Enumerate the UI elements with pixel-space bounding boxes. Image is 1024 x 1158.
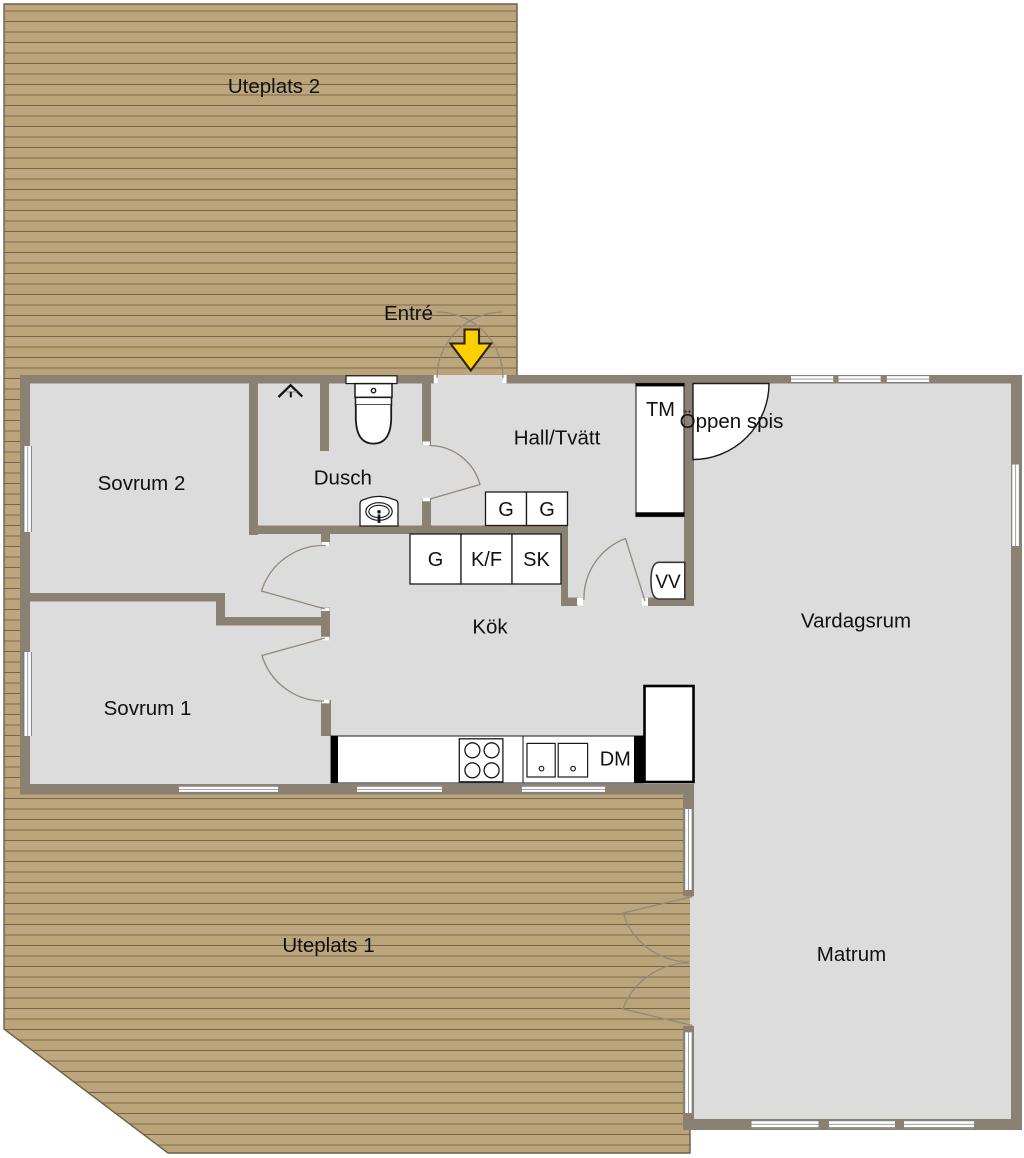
svg-text:Öppen spis: Öppen spis [680, 410, 784, 433]
svg-text:G: G [539, 499, 555, 521]
svg-text:Entré: Entré [384, 302, 433, 325]
svg-text:DM: DM [600, 748, 631, 770]
svg-text:Uteplats 1: Uteplats 1 [282, 934, 374, 957]
svg-text:TM: TM [646, 399, 675, 421]
svg-text:VV: VV [655, 572, 681, 593]
svg-text:SK: SK [523, 549, 550, 571]
svg-text:Dusch: Dusch [314, 467, 372, 490]
svg-text:Sovrum 1: Sovrum 1 [104, 697, 192, 720]
svg-text:Hall/Tvätt: Hall/Tvätt [514, 427, 601, 450]
svg-text:Uteplats 2: Uteplats 2 [228, 75, 320, 98]
svg-text:G: G [498, 499, 514, 521]
svg-text:Kök: Kök [472, 616, 508, 639]
svg-text:Matrum: Matrum [817, 943, 886, 966]
svg-text:G: G [428, 549, 444, 571]
svg-text:K/F: K/F [471, 549, 502, 571]
svg-text:Vardagsrum: Vardagsrum [801, 610, 911, 633]
svg-text:Sovrum 2: Sovrum 2 [98, 472, 186, 495]
